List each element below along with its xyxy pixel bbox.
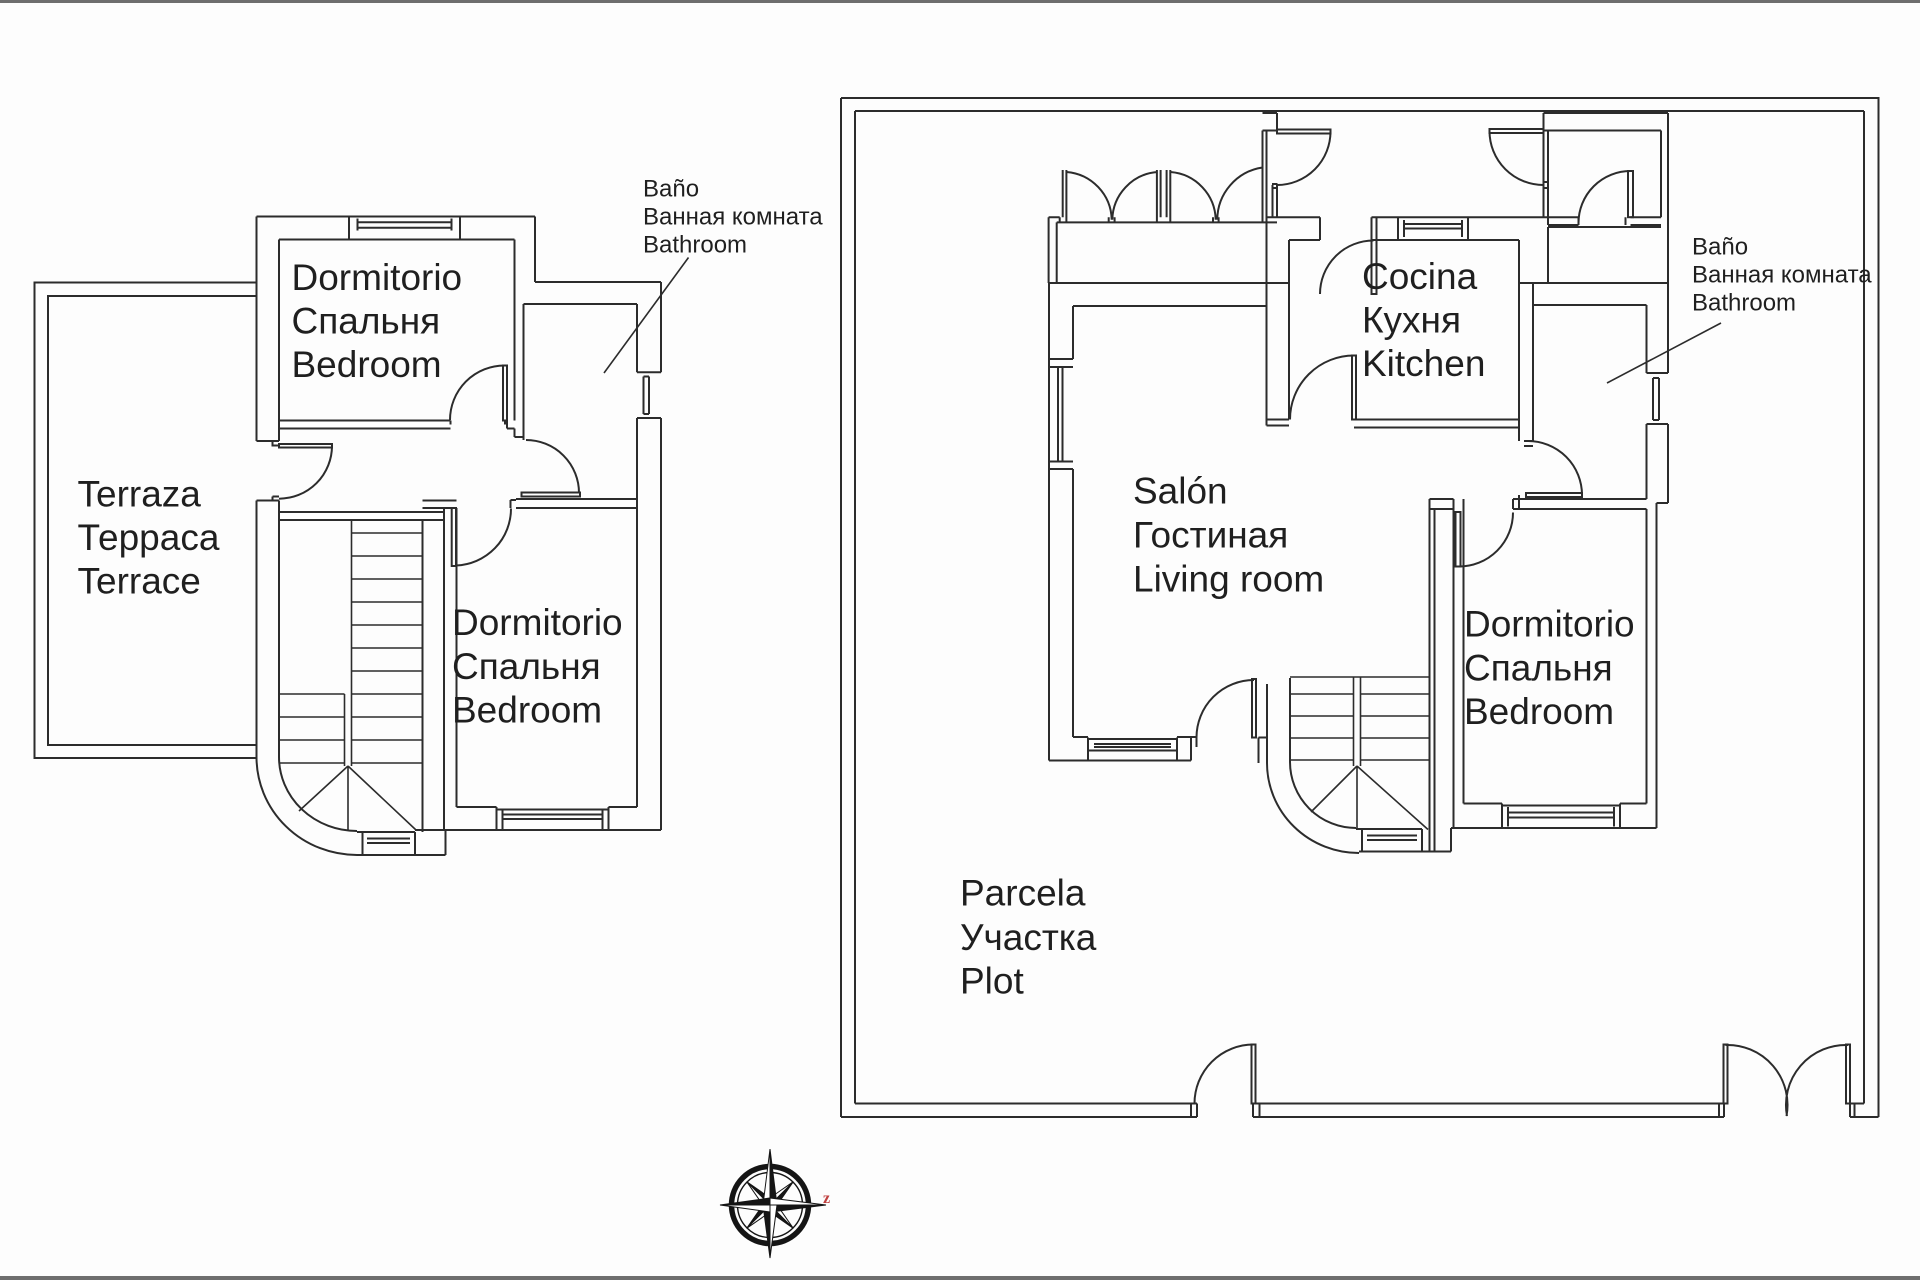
svg-text:Plot: Plot bbox=[960, 961, 1024, 1002]
svg-text:Dormitorio: Dormitorio bbox=[452, 602, 623, 643]
svg-text:Спальня: Спальня bbox=[452, 646, 601, 687]
svg-text:Участка: Участка bbox=[960, 917, 1097, 958]
svg-text:Bedroom: Bedroom bbox=[452, 690, 602, 731]
svg-text:Спальня: Спальня bbox=[292, 301, 441, 342]
svg-text:Гостиная: Гостиная bbox=[1133, 515, 1288, 556]
svg-text:z: z bbox=[823, 1190, 830, 1207]
svg-text:Dormitorio: Dormitorio bbox=[1464, 604, 1635, 645]
svg-text:Bedroom: Bedroom bbox=[292, 344, 442, 385]
svg-text:Cocina: Cocina bbox=[1362, 256, 1478, 297]
svg-text:Dormitorio: Dormitorio bbox=[292, 257, 463, 298]
svg-text:Salón: Salón bbox=[1133, 471, 1228, 512]
svg-text:Кухня: Кухня bbox=[1362, 300, 1461, 341]
svg-text:Baño: Baño bbox=[643, 176, 699, 203]
svg-text:Terrace: Terrace bbox=[78, 561, 201, 602]
svg-text:Ванная комната: Ванная комната bbox=[643, 204, 823, 231]
svg-text:Terraza: Terraza bbox=[78, 474, 202, 515]
svg-text:Bathroom: Bathroom bbox=[643, 232, 747, 259]
svg-text:Kitchen: Kitchen bbox=[1362, 343, 1485, 384]
svg-text:Parcela: Parcela bbox=[960, 873, 1086, 914]
svg-text:Baño: Baño bbox=[1692, 234, 1748, 261]
svg-text:Bathroom: Bathroom bbox=[1692, 290, 1796, 317]
svg-text:Living room: Living room bbox=[1133, 559, 1324, 600]
svg-text:Ванная комната: Ванная комната bbox=[1692, 262, 1872, 289]
svg-text:Bedroom: Bedroom bbox=[1464, 691, 1614, 732]
svg-text:Спальня: Спальня bbox=[1464, 648, 1613, 689]
svg-text:Терраса: Терраса bbox=[78, 517, 220, 558]
